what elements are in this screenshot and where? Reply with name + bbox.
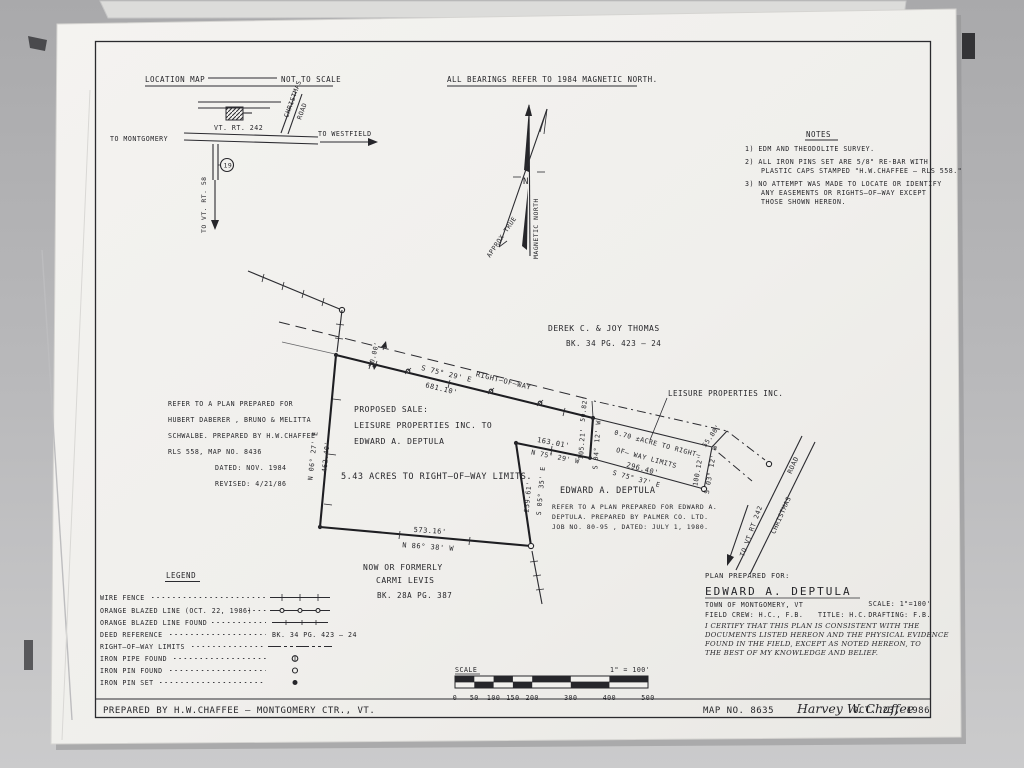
- magnetic-north-label: MAGNETIC NORTH: [532, 198, 540, 259]
- certify-line-1: I CERTIFY THAT THIS PLAN IS CONSISTENT W…: [704, 622, 920, 630]
- map-number: MAP NO. 8635: [703, 706, 774, 716]
- scale-tick-50: 50: [470, 694, 479, 702]
- carmi-name: CARMI LEVIS: [376, 576, 434, 585]
- to-rt58-label: TO VT. RT. 58: [200, 176, 208, 233]
- refer-west-5: DATED: NOV. 1984: [215, 464, 287, 472]
- legend-symbol-pin-found: [293, 668, 298, 673]
- thomas-deed-ref: BK. 34 PG. 423 — 24: [566, 339, 661, 348]
- bearings-note: ALL BEARINGS REFER TO 1984 MAGNETIC NORT…: [447, 75, 658, 84]
- scale-tick-400: 400: [603, 694, 616, 702]
- refer-west-3: SCHWALBE. PREPARED BY H.W.CHAFFEE: [168, 432, 316, 440]
- iron-pin-set-marker: [514, 441, 518, 445]
- iron-pin-set-marker: [591, 416, 595, 420]
- iron-pin-set-marker: [334, 353, 338, 357]
- carmi-now-formerly: NOW OR FORMERLY: [363, 563, 443, 572]
- note-3c: THOSE SHOWN HEREON.: [761, 198, 846, 206]
- refer-deptula-3: JOB NO. 80-95 , DATED: JULY 1, 1980.: [552, 523, 709, 531]
- legend-label-pin-set: IRON PIN SET: [100, 679, 154, 687]
- iron-pin-found-marker: [766, 461, 771, 466]
- note-2a: 2) ALL IRON PINS SET ARE 5/8" RE-BAR WIT…: [745, 158, 928, 166]
- note-2b: PLASTIC CAPS STAMPED "H.W.CHAFFEE — RLS …: [761, 167, 962, 175]
- proposed-sale-2: LEISURE PROPERTIES INC. TO: [354, 421, 492, 430]
- survey-map-photo: LOCATION MAP NOT TO SCALE VT. RT. 242 TO…: [0, 0, 1024, 768]
- certify-line-2: DOCUMENTS LISTED HEREON AND THE PHYSICAL…: [704, 631, 949, 639]
- to-westfield-label: TO WESTFIELD: [318, 130, 372, 138]
- scale-tick-150: 150: [506, 694, 519, 702]
- refer-west-6: REVISED: 4/21/86: [215, 480, 287, 488]
- to-montgomery-label: TO MONTGOMERY: [110, 135, 168, 143]
- proposed-sale-3: EDWARD A. DEPTULA: [354, 437, 444, 446]
- scale-bar-segments: [455, 676, 648, 688]
- scale-tick-0: 0: [453, 694, 457, 702]
- notes-title: NOTES: [806, 130, 831, 139]
- refer-deptula-2: DEPTULA. PREPARED BY PALMER CO. LTD.: [552, 513, 709, 521]
- legend-value-deed-ref: BK. 34 PG. 423 — 24: [272, 631, 357, 639]
- legend-label-wire-fence: WIRE FENCE: [100, 594, 145, 602]
- north-letter: N: [523, 177, 529, 187]
- drafting-label: DRAFTING: F.B.: [868, 611, 931, 619]
- building-hatched: [226, 107, 243, 120]
- carmi-deed-ref: BK. 28A PG. 387: [377, 591, 452, 600]
- scale-tick-100: 100: [487, 694, 500, 702]
- scale-tick-300: 300: [564, 694, 577, 702]
- refer-deptula-1: REFER TO A PLAN PREPARED FOR EDWARD A.: [552, 503, 717, 511]
- legend-label-deed-ref: DEED REFERENCE: [100, 631, 163, 639]
- certify-line-3: FOUND IN THE FIELD, EXCEPT AS NOTED HERE…: [704, 640, 921, 648]
- title-label: TITLE: H.C.: [818, 611, 867, 619]
- legend-title: LEGEND: [166, 571, 196, 580]
- leisure-properties-label: LEISURE PROPERTIES INC.: [668, 389, 783, 398]
- scale-tick-200: 200: [525, 694, 538, 702]
- client-name: EDWARD A. DEPTULA: [705, 585, 852, 598]
- corner-clip: [962, 33, 975, 59]
- thomas-name: DEREK C. & JOY THOMAS: [548, 324, 660, 333]
- refer-west-2: HUBERT DABERER , BRUNO & MELITTA: [168, 416, 311, 424]
- refer-west-4: RLS 558, MAP NO. 8436: [168, 448, 262, 456]
- legend-symbol-pipe-found: [292, 656, 298, 662]
- corner-mark-bottomleft: [24, 640, 33, 670]
- legend-label-pipe-found: IRON PIPE FOUND: [100, 655, 167, 663]
- scale-bar-ratio: 1" = 100': [610, 666, 650, 674]
- survey-plan-drawing: LOCATION MAP NOT TO SCALE VT. RT. 242 TO…: [0, 0, 1024, 768]
- scale-label: SCALE: 1"=100': [868, 600, 931, 608]
- acreage-label: 5.43 ACRES TO RIGHT—OF—WAY LIMITS.: [341, 472, 532, 482]
- refer-west-1: REFER TO A PLAN PREPARED FOR: [168, 400, 293, 408]
- legend-label-pin-found: IRON PIN FOUND: [100, 667, 163, 675]
- prepared-by-label: PREPARED BY H.W.CHAFFEE — MONTGOMERY CTR…: [103, 706, 375, 716]
- iron-pin-found-marker: [528, 543, 533, 548]
- deptula-owner-label: EDWARD A. DEPTULA: [560, 486, 656, 496]
- legend-label-blazed-found: ORANGE BLAZED LINE FOUND: [100, 619, 207, 627]
- plan-date: OCT. 23, 1986: [853, 706, 930, 716]
- scale-bar-label: SCALE: [455, 666, 477, 674]
- certify-line-4: THE BEST OF MY KNOWLEDGE AND BELIEF.: [705, 649, 878, 657]
- proposed-sale-1: PROPOSED SALE:: [354, 405, 428, 414]
- scale-tick-500: 500: [641, 694, 654, 702]
- plan-prepared-for-label: PLAN PREPARED FOR:: [705, 572, 790, 580]
- route-242-label: VT. RT. 242: [214, 124, 263, 132]
- legend-symbol-pin-set: [293, 680, 298, 685]
- legend-label-row-limits: RIGHT—OF—WAY LIMITS: [100, 643, 185, 651]
- note-3b: ANY EASEMENTS OR RIGHTS—OF—WAY EXCEPT: [761, 189, 926, 197]
- note-3a: 3) NO ATTEMPT WAS MADE TO LOCATE OR IDEN…: [745, 180, 942, 188]
- town-label: TOWN OF MONTGOMERY, VT: [705, 601, 803, 609]
- route-marker-number: 19: [224, 162, 233, 170]
- note-1: 1) EDM AND THEODOLITE SURVEY.: [745, 145, 875, 153]
- iron-pin-set-marker: [318, 525, 322, 529]
- legend-label-blazed-line: ORANGE BLAZED LINE (OCT. 22, 1986): [100, 607, 252, 615]
- not-to-scale-label: NOT TO SCALE: [281, 75, 341, 84]
- field-crew-label: FIELD CREW: H.C., F.B.: [705, 611, 803, 619]
- location-map-title: LOCATION MAP: [145, 75, 205, 84]
